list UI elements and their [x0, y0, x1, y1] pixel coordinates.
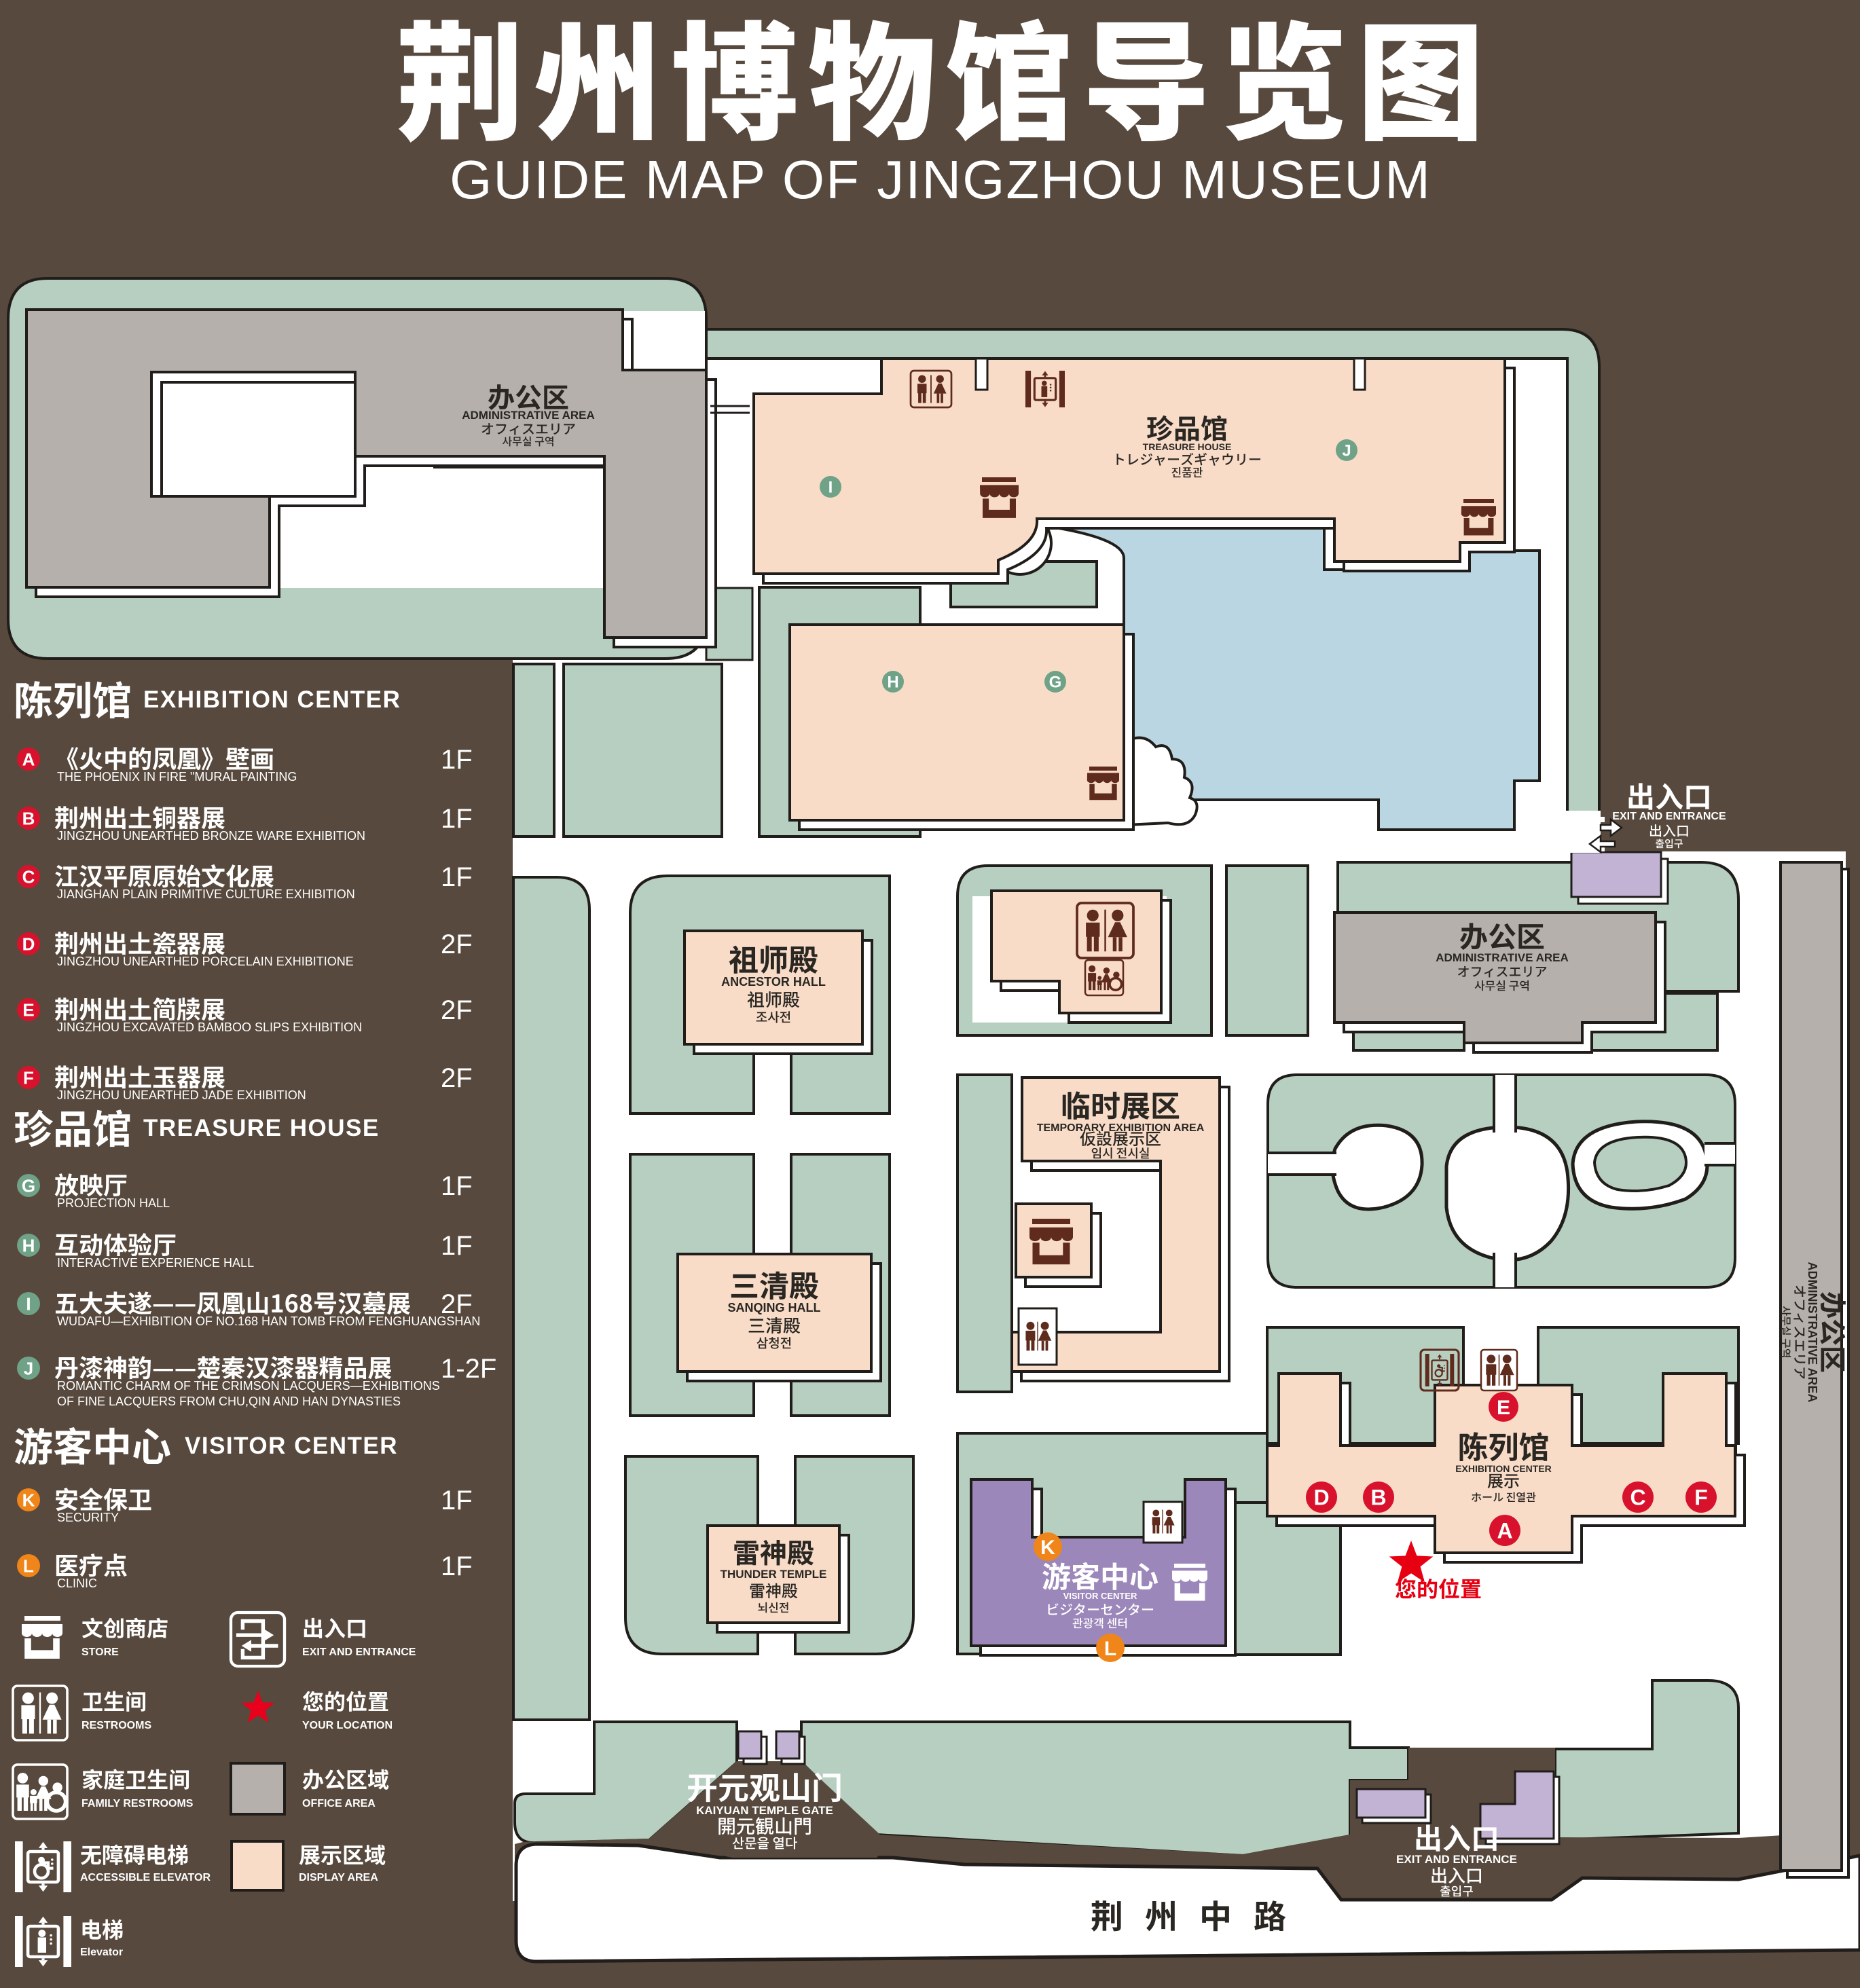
svg-text:B: B — [22, 808, 35, 828]
svg-text:FAMILY RESTROOMS: FAMILY RESTROOMS — [81, 1798, 194, 1809]
svg-text:EXHIBITION CENTER: EXHIBITION CENTER — [1455, 1463, 1552, 1474]
svg-text:WUDAFU—EXHIBITION OF NO.168 HA: WUDAFU—EXHIBITION OF NO.168 HAN TOMB FRO… — [57, 1314, 480, 1328]
svg-text:2F: 2F — [441, 929, 473, 959]
svg-text:INTERACTIVE EXPERIENCE HALL: INTERACTIVE EXPERIENCE HALL — [57, 1256, 254, 1270]
svg-text:EXIT AND ENTRANCE: EXIT AND ENTRANCE — [302, 1646, 416, 1658]
svg-text:1F: 1F — [441, 745, 473, 775]
svg-text:D: D — [1313, 1486, 1329, 1510]
svg-text:C: C — [22, 866, 35, 887]
svg-text:E: E — [1497, 1397, 1510, 1419]
svg-text:PROJECTION HALL: PROJECTION HALL — [57, 1196, 170, 1210]
svg-text:J: J — [24, 1358, 33, 1378]
svg-text:OFFICE AREA: OFFICE AREA — [302, 1798, 376, 1809]
svg-text:1F: 1F — [441, 804, 473, 834]
svg-text:G: G — [22, 1175, 35, 1196]
svg-text:A: A — [1497, 1519, 1512, 1543]
svg-text:2F: 2F — [441, 995, 473, 1025]
svg-text:L: L — [23, 1556, 34, 1576]
svg-text:F: F — [23, 1067, 34, 1088]
svg-text:JINGZHOU EXCAVATED BAMBOO SLIP: JINGZHOU EXCAVATED BAMBOO SLIPS EXHIBITI… — [57, 1020, 362, 1034]
svg-text:JINGZHOU UNEARTHED BRONZE WARE: JINGZHOU UNEARTHED BRONZE WARE EXHIBITIO… — [57, 829, 365, 843]
svg-text:SECURITY: SECURITY — [57, 1511, 119, 1524]
svg-text:I: I — [26, 1293, 31, 1314]
svg-text:GUIDE MAP OF JINGZHOU MUSEUM: GUIDE MAP OF JINGZHOU MUSEUM — [450, 149, 1432, 210]
svg-text:DISPLAY AREA: DISPLAY AREA — [299, 1872, 378, 1883]
svg-text:ACCESSIBLE ELEVATOR: ACCESSIBLE ELEVATOR — [80, 1872, 211, 1883]
svg-text:JINGZHOU UNEARTHED PORCELAIN E: JINGZHOU UNEARTHED PORCELAIN EXHIBITIONE — [57, 955, 354, 968]
svg-text:EXIT AND ENTRANCE: EXIT AND ENTRANCE — [1612, 811, 1726, 822]
svg-text:SANQING HALL: SANQING HALL — [728, 1301, 821, 1314]
svg-text:1F: 1F — [441, 1231, 473, 1261]
svg-text:J: J — [1342, 442, 1351, 460]
svg-text:RESTROOMS: RESTROOMS — [81, 1720, 151, 1731]
svg-text:STORE: STORE — [81, 1646, 119, 1658]
svg-text:YOUR LOCATION: YOUR LOCATION — [302, 1720, 393, 1731]
svg-text:1F: 1F — [441, 1486, 473, 1515]
svg-text:E: E — [22, 999, 34, 1020]
svg-text:EXIT AND ENTRANCE: EXIT AND ENTRANCE — [1396, 1853, 1517, 1866]
svg-text:ADMINISTRATIVE AREA: ADMINISTRATIVE AREA — [1806, 1262, 1819, 1403]
svg-text:C: C — [1630, 1486, 1645, 1510]
svg-text:ADMINISTRATIVE AREA: ADMINISTRATIVE AREA — [462, 409, 595, 422]
svg-text:1F: 1F — [441, 862, 473, 892]
svg-text:D: D — [22, 934, 35, 954]
svg-text:A: A — [22, 749, 35, 769]
svg-text:I: I — [828, 479, 833, 497]
svg-text:Elevator: Elevator — [80, 1947, 123, 1958]
svg-text:B: B — [1370, 1486, 1386, 1510]
svg-text:THE PHOENIX IN FIRE "MURAL PAI: THE PHOENIX IN FIRE "MURAL PAINTING — [57, 770, 297, 784]
svg-text:2F: 2F — [441, 1289, 473, 1319]
svg-text:1-2F: 1-2F — [441, 1354, 496, 1384]
svg-text:TREASURE HOUSE: TREASURE HOUSE — [143, 1115, 380, 1141]
svg-text:ADMINISTRATIVE AREA: ADMINISTRATIVE AREA — [1436, 951, 1569, 964]
svg-text:G: G — [1049, 674, 1062, 692]
svg-text:THUNDER TEMPLE: THUNDER TEMPLE — [721, 1568, 827, 1581]
svg-text:JINGZHOU UNEARTHED JADE EXHIBI: JINGZHOU UNEARTHED JADE EXHIBITION — [57, 1088, 306, 1102]
svg-text:JIANGHAN PLAIN PRIMITIVE CULTU: JIANGHAN PLAIN PRIMITIVE CULTURE EXHIBIT… — [57, 887, 355, 901]
svg-text:H: H — [22, 1235, 35, 1255]
svg-text:1F: 1F — [441, 1171, 473, 1201]
svg-text:VISITOR CENTER: VISITOR CENTER — [1063, 1591, 1137, 1601]
svg-text:CLINIC: CLINIC — [57, 1577, 97, 1590]
svg-text:ROMANTIC CHARM OF THE CRIMSON: ROMANTIC CHARM OF THE CRIMSON LACQUERS—E… — [57, 1379, 440, 1393]
svg-text:K: K — [22, 1490, 35, 1510]
svg-text:H: H — [887, 674, 898, 692]
svg-text:L: L — [1104, 1638, 1116, 1660]
svg-text:TREASURE HOUSE: TREASURE HOUSE — [1143, 441, 1232, 452]
svg-text:KAIYUAN TEMPLE GATE: KAIYUAN TEMPLE GATE — [696, 1804, 833, 1817]
svg-text:1F: 1F — [441, 1551, 473, 1581]
svg-text:K: K — [1040, 1536, 1055, 1559]
svg-text:VISITOR CENTER: VISITOR CENTER — [185, 1433, 398, 1459]
svg-text:EXHIBITION CENTER: EXHIBITION CENTER — [143, 686, 401, 713]
svg-text:2F: 2F — [441, 1063, 473, 1093]
svg-text:ANCESTOR HALL: ANCESTOR HALL — [721, 975, 826, 989]
svg-text:F: F — [1694, 1486, 1708, 1510]
svg-text:OF FINE LACQUERS FROM CHU,QIN: OF FINE LACQUERS FROM CHU,QIN AND HAN DY… — [57, 1395, 401, 1408]
